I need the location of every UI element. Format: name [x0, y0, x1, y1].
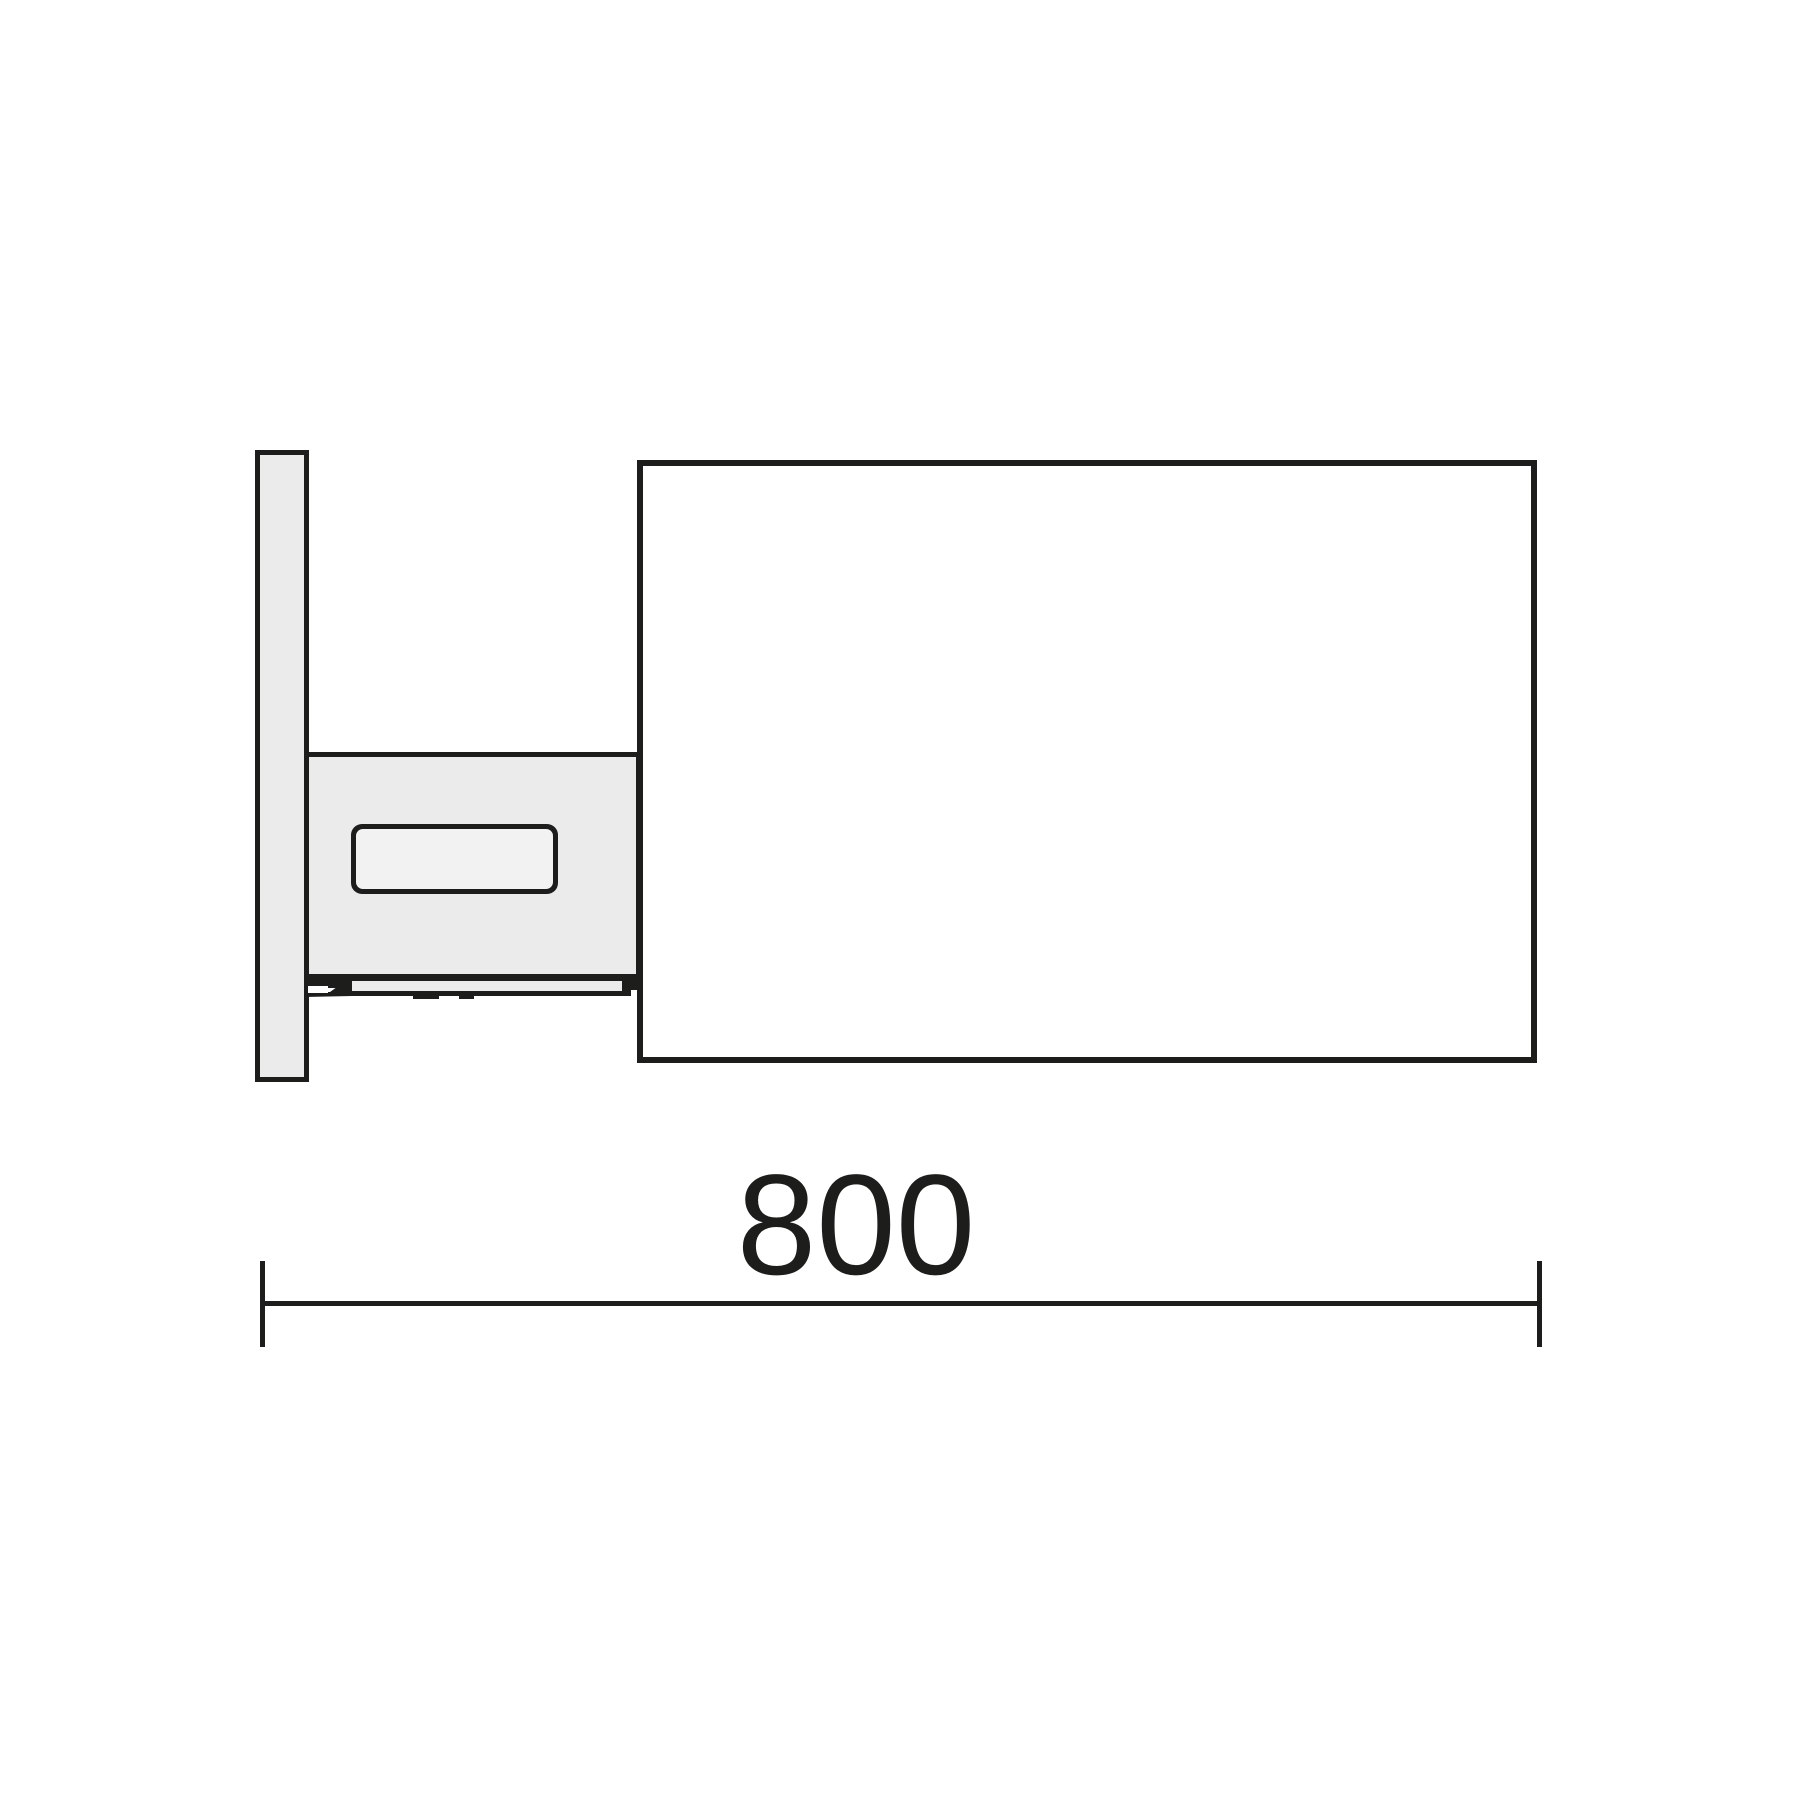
runner-tab-left	[413, 995, 439, 999]
runner-tab-right	[459, 995, 474, 999]
cabinet-side-section-drawing: 800	[0, 0, 1800, 1800]
runner-bracket-slot	[308, 986, 328, 993]
drawer-recess-face	[356, 829, 553, 889]
dimension-tick-right	[1537, 1261, 1542, 1347]
dimension-tick-left	[260, 1261, 265, 1347]
cabinet-body-face	[643, 466, 1531, 1057]
technical-drawing-canvas: 800	[0, 0, 1800, 1800]
wall-panel-face	[260, 455, 304, 1077]
runner-end-cap	[620, 974, 638, 992]
runner-top-line	[348, 974, 638, 981]
runner-bottom-line	[348, 991, 634, 996]
dimension-value: 800	[737, 1146, 976, 1305]
runner-right-notch	[631, 990, 638, 999]
runner-rail-strip	[352, 981, 622, 991]
